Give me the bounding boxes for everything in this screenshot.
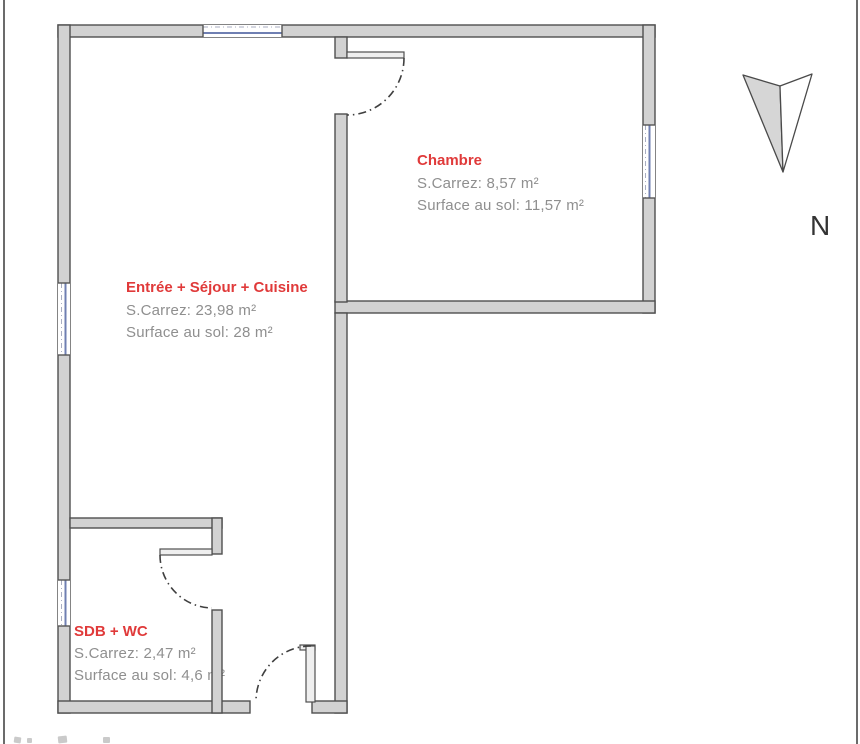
sdb-right-wall-upper — [212, 518, 222, 554]
floor-plan: Chambre S.Carrez: 8,57 m² Surface au sol… — [0, 0, 860, 744]
sdb-door-leaf — [160, 549, 212, 555]
chambre-door-leaf — [347, 52, 404, 58]
chambre-divider-wall — [335, 114, 347, 302]
chambre-door-swing-arc — [347, 58, 404, 115]
window-left-sejour — [58, 283, 70, 355]
chambre-divider-wall-top-stub — [335, 37, 347, 58]
chambre-bottom-wall — [335, 301, 655, 313]
north-arrow-right-blade — [780, 74, 812, 172]
north-arrow-icon — [743, 74, 812, 172]
top-wall — [58, 25, 655, 37]
window-left-sdb — [58, 580, 70, 626]
north-arrow-left-blade — [743, 75, 783, 172]
entrance-door-leaf — [306, 646, 315, 702]
bottom-wall-right-segment — [312, 701, 347, 713]
sdb-door-swing-arc — [160, 555, 212, 608]
floor-plan-drawing — [0, 0, 860, 744]
entrance-door-swing-arc — [256, 646, 311, 701]
sdb-right-wall-lower — [212, 610, 222, 713]
corridor-right-wall — [335, 313, 347, 713]
sdb-top-wall — [70, 518, 222, 528]
